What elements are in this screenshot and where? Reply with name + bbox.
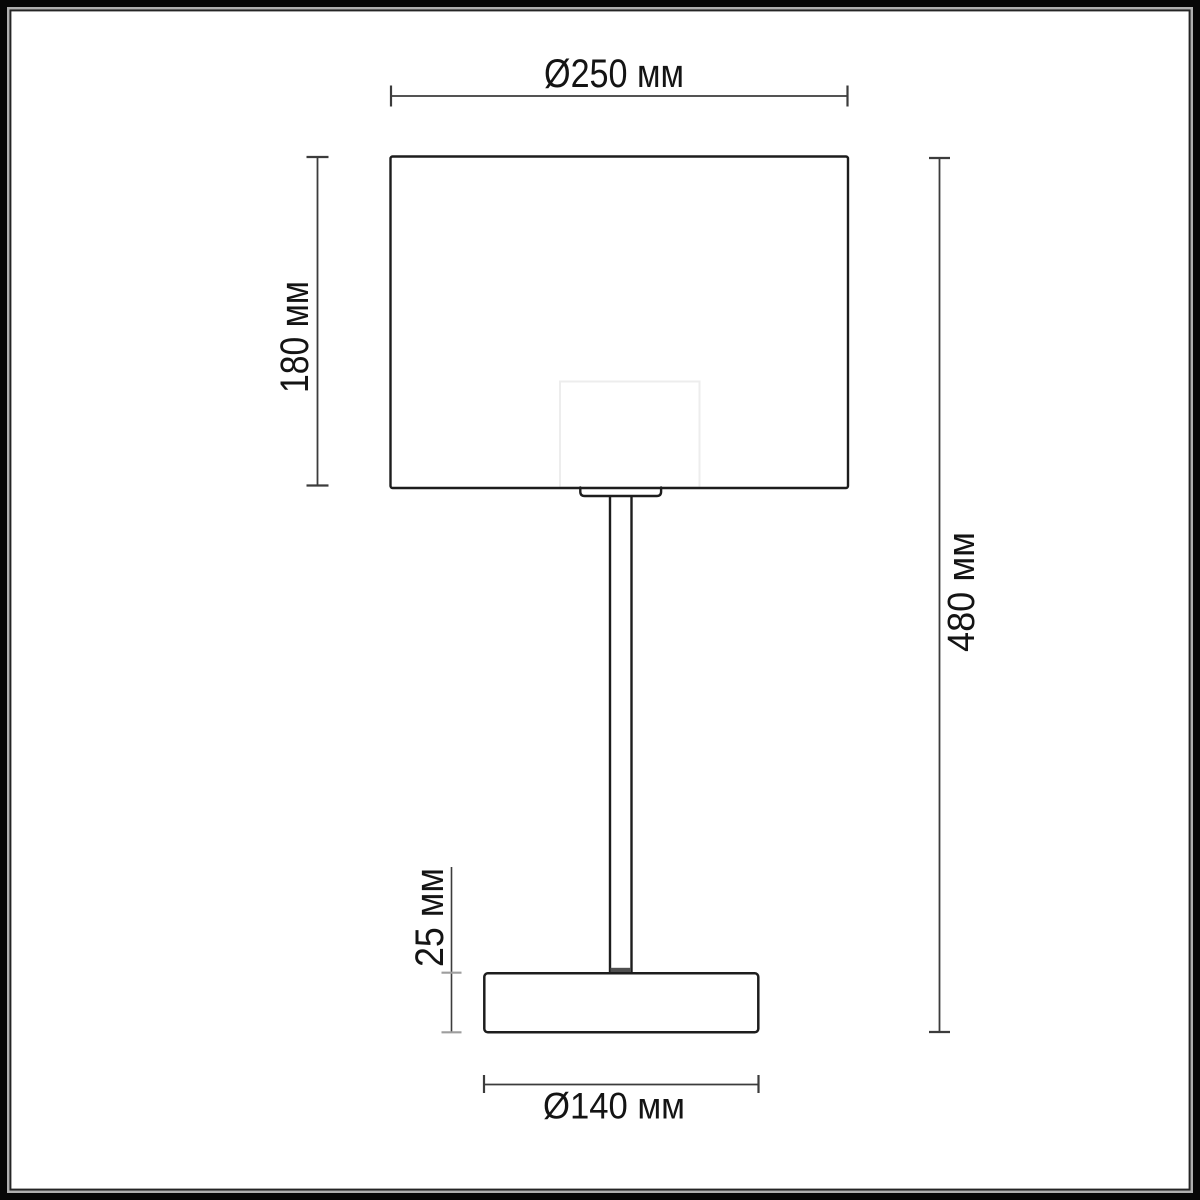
svg-text:480 мм: 480 мм <box>941 532 983 652</box>
svg-text:Ø250 мм: Ø250 мм <box>544 52 684 96</box>
svg-text:180 мм: 180 мм <box>273 281 317 393</box>
svg-text:25 мм: 25 мм <box>408 868 452 967</box>
svg-text:Ø140 мм: Ø140 мм <box>543 1085 685 1127</box>
